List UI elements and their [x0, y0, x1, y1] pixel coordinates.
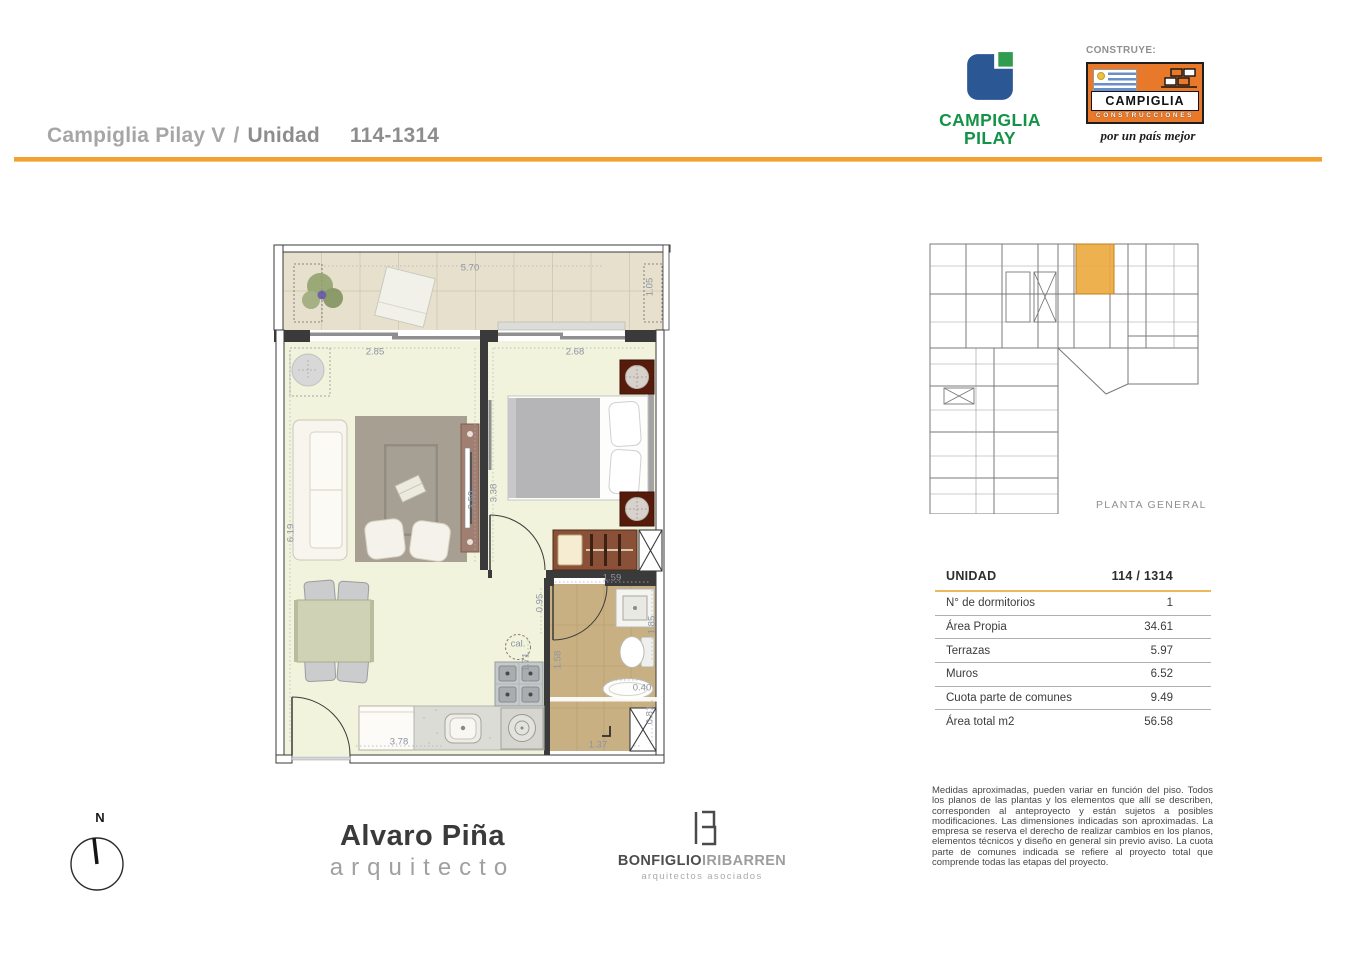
building-blocks-icon — [1159, 66, 1199, 90]
table-row: N° de dormitorios1 — [935, 592, 1211, 616]
dining-set — [294, 580, 374, 684]
closet — [553, 530, 637, 570]
unit-table-header-label: UNIDAD — [935, 569, 996, 583]
table-row: Terrazas5.97 — [935, 639, 1211, 663]
breadcrumb-separator: / — [233, 124, 239, 147]
campiglia-pilay-logo: CAMPIGLIA PILAY — [922, 50, 1058, 147]
project-name: Campiglia Pilay V — [47, 124, 225, 147]
architect-signature: Alvaro Piña arquitecto — [300, 820, 545, 882]
unit-label: Unidad — [248, 124, 320, 147]
studio-name-light: IRIBARREN — [702, 853, 786, 869]
sofa — [293, 420, 347, 560]
key-plan-drawing — [888, 236, 1210, 514]
table-row-value: 56.58 — [1144, 716, 1211, 728]
floor-plan-drawing — [264, 238, 676, 778]
unit-table: UNIDAD 114 / 1314 N° de dormitorios1Área… — [935, 565, 1211, 733]
unit-table-header-value: 114 / 1314 — [1112, 569, 1211, 583]
architect-name: Alvaro Piña — [300, 820, 545, 853]
unit-table-rows: N° de dormitorios1Área Propia34.61Terraz… — [935, 592, 1211, 733]
table-row-value: 5.97 — [1151, 645, 1211, 657]
table-row-label: Muros — [935, 668, 978, 680]
table-row-value: 6.52 — [1151, 668, 1211, 680]
studio-monogram-icon — [682, 810, 722, 846]
bed — [508, 390, 654, 508]
orange-divider — [14, 157, 1322, 162]
construcciones-logo: CAMPIGLIA CONSTRUCCIONES — [1086, 62, 1204, 124]
table-row: Cuota parte de comunes9.49 — [935, 687, 1211, 711]
table-row: Área Propia34.61 — [935, 616, 1211, 640]
construcciones-subtitle: CONSTRUCCIONES — [1088, 112, 1202, 119]
table-row: Área total m256.58 — [935, 710, 1211, 733]
studio-signature: BONFIGLIOIRIBARREN arquitectos asociados — [610, 810, 794, 882]
pilay-line2: PILAY — [922, 129, 1058, 147]
table-row-value: 1 — [1167, 597, 1211, 609]
table-row-label: Área total m2 — [935, 716, 1014, 728]
construcciones-tagline: por un país mejor — [1086, 128, 1210, 144]
disclaimer-text: Medidas aproximadas, pueden variar en fu… — [932, 786, 1213, 868]
highlighted-unit — [1076, 244, 1114, 294]
construye-label: CONSTRUYE: — [1086, 45, 1210, 56]
table-row-value: 34.61 — [1144, 621, 1211, 633]
table-row-label: Área Propia — [935, 621, 1007, 633]
studio-subtitle: arquitectos asociados — [610, 871, 794, 882]
architect-title: arquitecto — [300, 854, 545, 882]
table-row: Muros6.52 — [935, 663, 1211, 687]
table-row-value: 9.49 — [1151, 692, 1211, 704]
page-title: Campiglia Pilay V/Unidad114-1314 — [47, 124, 439, 148]
north-compass: N — [63, 812, 133, 897]
table-row-label: N° de dormitorios — [935, 597, 1035, 609]
studio-name: BONFIGLIOIRIBARREN — [610, 853, 794, 869]
tv-unit — [461, 424, 479, 552]
plan-sheet: Campiglia Pilay V/Unidad114-1314 CAMPIGL… — [0, 0, 1347, 959]
construcciones-wordmark: CAMPIGLIA — [1091, 91, 1199, 111]
floor-plan: 5.701.052.852.686.193.503.381.590.951.85… — [264, 238, 676, 778]
campiglia-construcciones-block: CONSTRUYE: CAMPIGLIA CONSTRUCCIONES por … — [1086, 45, 1210, 144]
key-plan-caption: PLANTA GENERAL — [1096, 499, 1207, 511]
studio-name-dark: BONFIGLIO — [618, 853, 702, 869]
table-row-label: Terrazas — [935, 645, 990, 657]
pilay-line1: CAMPIGLIA — [922, 111, 1058, 129]
pilay-logo-text: CAMPIGLIA PILAY — [922, 111, 1058, 147]
north-label: N — [63, 810, 135, 825]
unit-table-header: UNIDAD 114 / 1314 — [935, 565, 1211, 592]
unit-number: 114-1314 — [350, 124, 439, 147]
pilay-logo-icon — [963, 50, 1017, 104]
table-row-label: Cuota parte de comunes — [935, 692, 1072, 704]
